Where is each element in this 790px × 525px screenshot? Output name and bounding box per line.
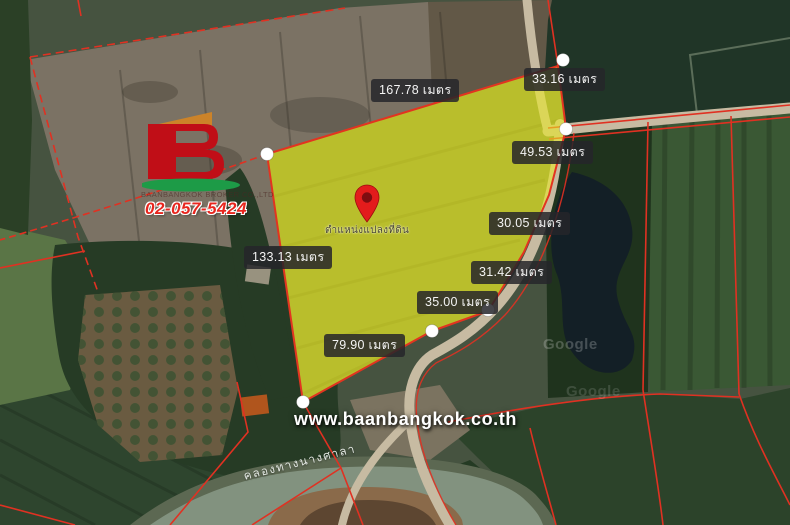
- map-provider-watermark: Google: [543, 336, 598, 353]
- website-watermark: www.baanbangkok.co.th: [294, 409, 517, 430]
- location-pin-icon: [353, 184, 381, 224]
- measurement-label-south: 79.90 เมตร: [324, 334, 405, 357]
- logo-b-icon: [142, 102, 252, 202]
- measurement-label-east-4: 35.00 เมตร: [417, 291, 498, 314]
- company-name-text: BAANBANGKOK BROKER CO.,LTD: [141, 190, 274, 199]
- measurement-label-west: 133.13 เมตร: [244, 246, 332, 269]
- measurement-label-east-3: 31.42 เมตร: [471, 261, 552, 284]
- measurement-label-northeast: 33.16 เมตร: [524, 68, 605, 91]
- phone-number: 02-057-5424: [145, 199, 247, 219]
- pin-caption: ตำแหน่งแปลงที่ดิน: [325, 223, 409, 238]
- map-provider-watermark: Google: [566, 383, 621, 400]
- land-plot-map-image: 167.78 เมตร 33.16 เมตร 49.53 เมตร 30.05 …: [0, 0, 790, 525]
- measurement-label-east-2: 30.05 เมตร: [489, 212, 570, 235]
- company-logo: [142, 102, 252, 202]
- measurement-label-east-1: 49.53 เมตร: [512, 141, 593, 164]
- measurement-label-north: 167.78 เมตร: [371, 79, 459, 102]
